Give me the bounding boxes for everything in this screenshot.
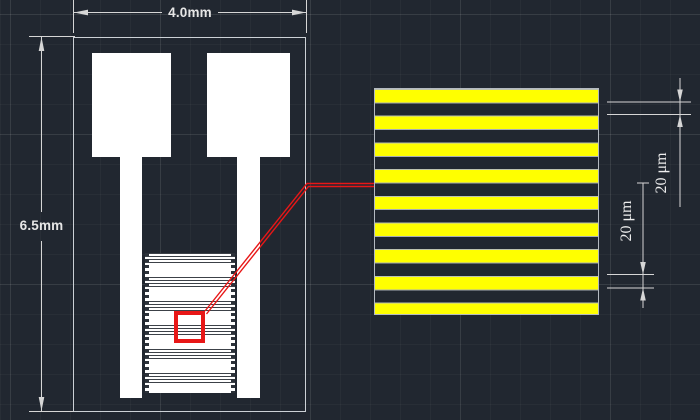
arrow-up-icon (677, 115, 683, 128)
arrow-left-icon (74, 10, 88, 16)
finger-gap-column-left (145, 253, 149, 393)
arrow-down-icon (640, 262, 646, 275)
finger-gap-column-right (231, 253, 235, 393)
contact-pad-left (92, 53, 171, 157)
height-dimension-label: 6.5mm (17, 219, 66, 234)
arrow-down-icon (39, 397, 45, 411)
gap-dimension-lines (607, 78, 691, 207)
detail-inset-stripes (374, 88, 599, 315)
contact-pad-right (207, 53, 290, 157)
arrow-up-icon (39, 37, 45, 51)
gap-dimension-label: 20 μm (654, 152, 670, 193)
arrow-right-icon (292, 10, 306, 16)
finger-width-dimension-label: 20 μm (619, 200, 635, 241)
cad-viewport[interactable]: 4.0mm 6.5mm 20 μm 20 μm (0, 0, 700, 420)
electrode-track-right (237, 156, 260, 398)
electrode-track-left (120, 156, 142, 398)
arrow-up-icon (640, 288, 646, 301)
width-dimension-label: 4.0mm (165, 6, 215, 21)
arrow-down-icon (677, 90, 683, 103)
zoom-region-marker (174, 311, 205, 343)
